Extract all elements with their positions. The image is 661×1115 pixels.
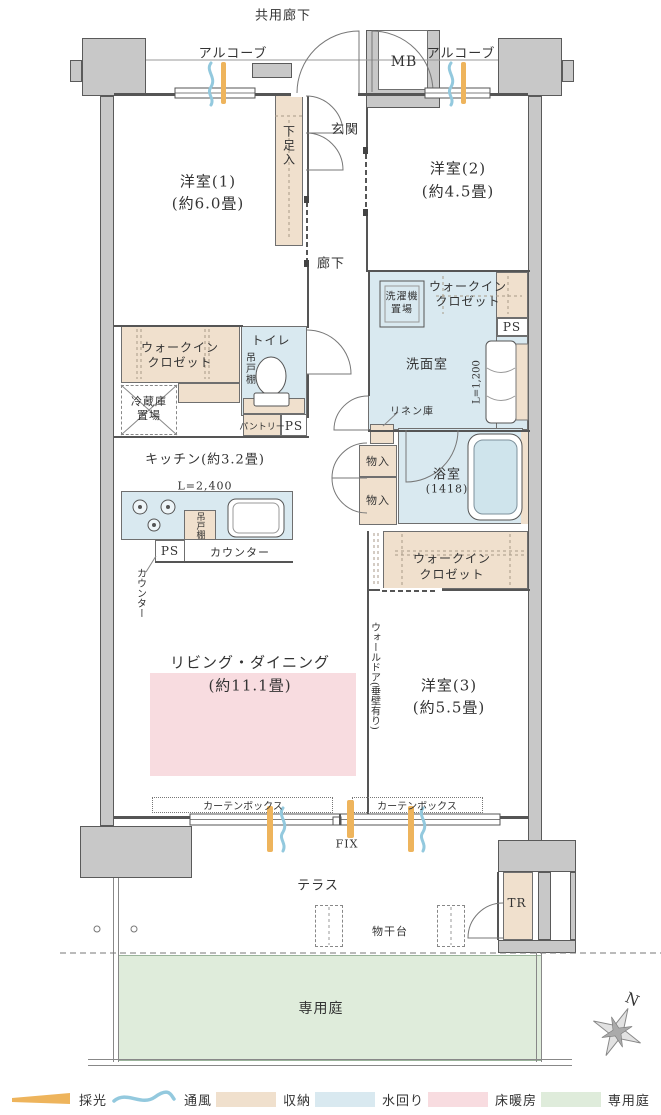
legend-garden-label: 専用庭 xyxy=(608,1090,650,1109)
wall xyxy=(538,872,551,940)
fence-post xyxy=(131,926,137,932)
wall-door-label: ウォールドア(垂壁有り) xyxy=(367,622,382,730)
legend-water: 水回り xyxy=(315,1090,424,1109)
room1-size: (約6.0畳) xyxy=(172,193,245,214)
counter-front-label: カウンター xyxy=(210,544,270,560)
wall xyxy=(498,38,562,96)
wic1-label-2: クロゼット xyxy=(147,354,212,371)
ps-label-kitchen: PS xyxy=(161,544,179,558)
wall xyxy=(366,270,530,272)
washroom-right xyxy=(496,336,528,430)
legend-ventilation-label: 通風 xyxy=(184,1090,212,1109)
bath-size-label: (1418) xyxy=(426,483,469,496)
shoe-cabinet xyxy=(275,94,303,246)
linen-storage xyxy=(370,424,394,444)
fence xyxy=(88,1065,572,1066)
door-opening xyxy=(380,588,442,592)
wall xyxy=(307,263,309,328)
trunk-room-label: TR xyxy=(507,896,526,910)
kitchen-label: キッチン(約3.2畳) xyxy=(145,449,265,468)
living-name: リビング・ダイニング xyxy=(170,652,330,673)
wall xyxy=(114,816,192,819)
toilet-hanging-label: 吊戸棚 xyxy=(242,352,257,385)
washer-label-2: 置場 xyxy=(391,301,413,316)
heating-swatch xyxy=(428,1092,488,1107)
daylight-icon xyxy=(12,1091,72,1107)
fence xyxy=(88,1059,572,1060)
window-handle xyxy=(333,817,341,825)
fence xyxy=(118,878,119,1062)
linen-label: リネン庫 xyxy=(390,403,434,418)
legend-water-label: 水回り xyxy=(382,1090,424,1109)
wall xyxy=(307,374,309,418)
shoe-cabinet-label: 下足入 xyxy=(281,125,298,167)
toilet-door-arc xyxy=(307,330,351,374)
wall xyxy=(307,96,309,200)
room3-name: 洋室(3) xyxy=(421,675,477,696)
fridge-label-2: 置場 xyxy=(137,407,161,423)
hallway-label: 廊下 xyxy=(317,253,345,272)
wall xyxy=(528,96,542,842)
pantry-label: パントリー xyxy=(239,420,284,433)
room2-name: 洋室(2) xyxy=(430,158,486,179)
alcove-right-label: アルコーブ xyxy=(427,43,496,62)
wall xyxy=(82,38,146,96)
curtain-box-right-label: カーテンボックス xyxy=(377,798,457,813)
common-corridor-label: 共用廊下 xyxy=(255,5,311,24)
washroom-label: 洗面室 xyxy=(406,354,448,373)
counter-side-label: カウンター xyxy=(133,568,148,618)
wall xyxy=(368,272,370,396)
compass-north-label: N xyxy=(622,988,642,1010)
door-opening xyxy=(291,92,358,97)
curtain-box-left-label: カーテンボックス xyxy=(203,798,283,813)
water-swatch xyxy=(315,1092,375,1107)
storage2-label: 物入 xyxy=(366,492,390,508)
genkan-label: 玄関 xyxy=(331,119,359,138)
ps-label-pantry: PS xyxy=(285,419,303,433)
legend-garden: 専用庭 xyxy=(541,1090,650,1109)
terrace-label: テラス xyxy=(297,875,339,894)
washroom-door-arc xyxy=(334,396,368,430)
genkan-door-arc xyxy=(306,133,343,170)
garden-label: 専用庭 xyxy=(299,998,344,1018)
fence-post xyxy=(94,926,100,932)
walkin-closet-1-ext xyxy=(178,383,240,403)
compass-icon: N xyxy=(582,980,659,1066)
ps-label-wic2: PS xyxy=(503,320,521,334)
wall xyxy=(498,840,576,872)
kitchen-counter-length: L=2,400 xyxy=(177,480,232,493)
wall xyxy=(366,108,368,154)
wall xyxy=(498,940,576,953)
legend-heating: 床暖房 xyxy=(428,1090,537,1109)
fence xyxy=(536,952,537,1062)
wall xyxy=(80,826,192,878)
vanity-length-label: L=1,200 xyxy=(472,360,483,404)
wall xyxy=(70,60,82,82)
fence xyxy=(541,952,542,1062)
storage1-label: 物入 xyxy=(366,453,390,469)
wall xyxy=(366,212,368,272)
wall xyxy=(114,325,243,327)
drying-stand-label: 物干台 xyxy=(372,923,408,939)
legend: 採光 通風 収納 水回り 床暖房 専用庭 xyxy=(12,1086,650,1112)
toilet-counter xyxy=(243,398,305,414)
legend-daylight-label: 採光 xyxy=(79,1090,107,1109)
meter-box-label: MB xyxy=(391,54,418,70)
drying-stand xyxy=(315,905,343,947)
garden-swatch xyxy=(541,1092,601,1107)
fix-window-label: FIX xyxy=(336,838,359,851)
wall xyxy=(368,430,530,432)
legend-storage-label: 収納 xyxy=(283,1090,311,1109)
bath-label: 浴室 xyxy=(433,464,461,483)
door-stops xyxy=(304,147,368,267)
wic2-label-2: クロゼット xyxy=(435,293,500,310)
wall xyxy=(500,816,528,819)
wic3-label-1: ウォークイン xyxy=(413,550,491,567)
window-mullion xyxy=(340,814,350,825)
legend-ventilation: 通風 xyxy=(111,1090,212,1109)
ventilation-icon xyxy=(111,1090,177,1108)
wall xyxy=(497,872,499,940)
fence xyxy=(113,878,114,1062)
drying-stand xyxy=(437,905,465,947)
counter-edge xyxy=(155,561,293,563)
wic3-label-2: クロゼット xyxy=(419,566,484,583)
kitchen-hanging-label: 吊戸棚 xyxy=(194,512,207,539)
floor-plan: N 共用廊下 アルコーブ アルコーブ MB 玄関 下足入 廊下 洋室(1) (約… xyxy=(0,0,661,1115)
storage-swatch xyxy=(216,1092,276,1107)
alcove-left-label: アルコーブ xyxy=(199,43,268,62)
bath-side-strip xyxy=(521,432,528,524)
legend-daylight: 採光 xyxy=(12,1090,107,1109)
wall xyxy=(100,96,114,826)
room1-name: 洋室(1) xyxy=(180,171,236,192)
wall xyxy=(252,63,292,78)
toilet-label: トイレ xyxy=(251,332,290,349)
entrance-door-arc xyxy=(297,31,359,93)
wall xyxy=(570,872,576,940)
room2-size: (約4.5畳) xyxy=(422,181,495,202)
legend-heating-label: 床暖房 xyxy=(495,1090,537,1109)
room3-size: (約5.5畳) xyxy=(413,697,486,718)
living-size: (約11.1畳) xyxy=(208,675,291,696)
legend-storage: 収納 xyxy=(216,1090,311,1109)
wall xyxy=(114,436,309,438)
wall xyxy=(562,60,574,82)
